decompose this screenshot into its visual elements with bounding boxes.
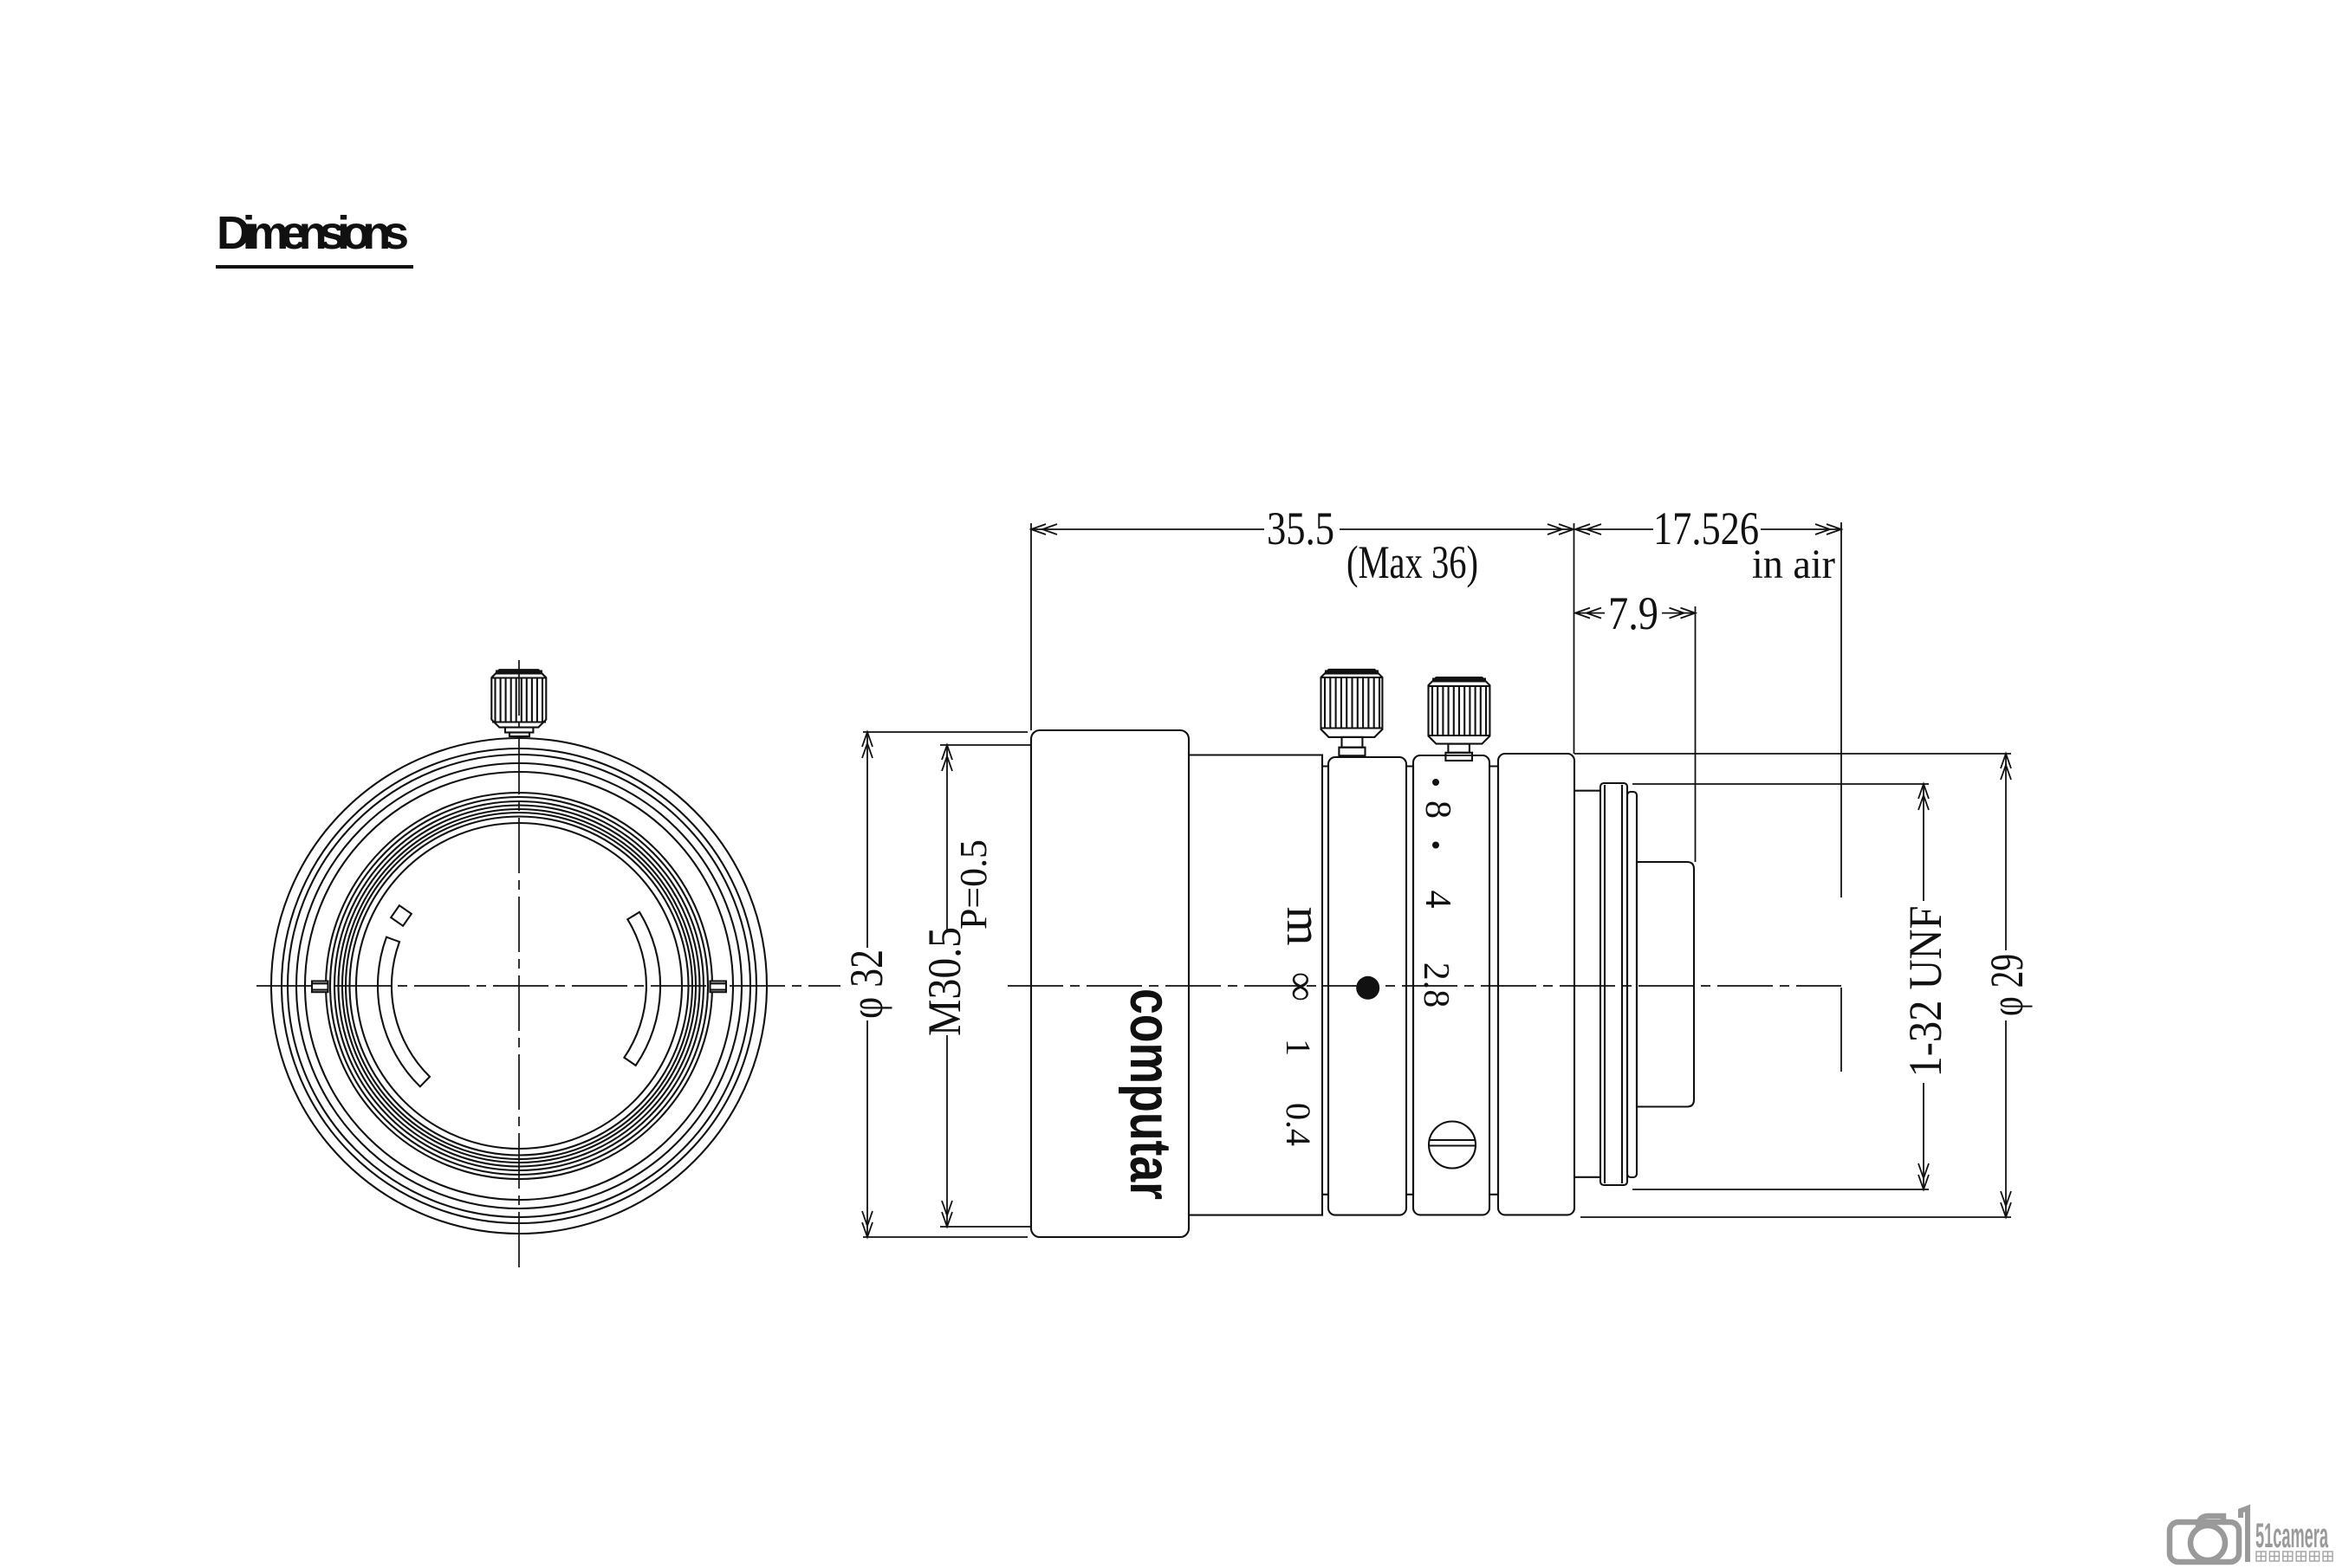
svg-text:φ 32: φ 32 [840,949,892,1019]
svg-text:∞: ∞ [1279,972,1325,1001]
svg-text:0.4: 0.4 [1279,1103,1318,1146]
svg-text:7.9: 7.9 [1608,587,1658,639]
svg-text:computar: computar [1118,988,1183,1200]
svg-text:m: m [1276,906,1333,945]
svg-text:in air: in air [1752,541,1835,587]
svg-text:4: 4 [1418,891,1457,909]
svg-text:2.8: 2.8 [1416,962,1456,1008]
svg-text:Dimensions: Dimensions [217,207,409,259]
svg-text:1: 1 [1279,1039,1318,1056]
svg-text:35.5: 35.5 [1267,502,1334,554]
svg-text:P=0.5: P=0.5 [952,839,995,930]
svg-text:φ 29: φ 29 [1981,954,2033,1016]
svg-text:M30.5: M30.5 [918,927,970,1036]
svg-text:17.526: 17.526 [1653,502,1759,554]
svg-text:1-32 UNF: 1-32 UNF [1899,906,1951,1078]
svg-text:(Max 36): (Max 36) [1346,536,1478,588]
svg-text:51camera: 51camera [2255,1517,2328,1555]
svg-text:8: 8 [1418,800,1457,819]
